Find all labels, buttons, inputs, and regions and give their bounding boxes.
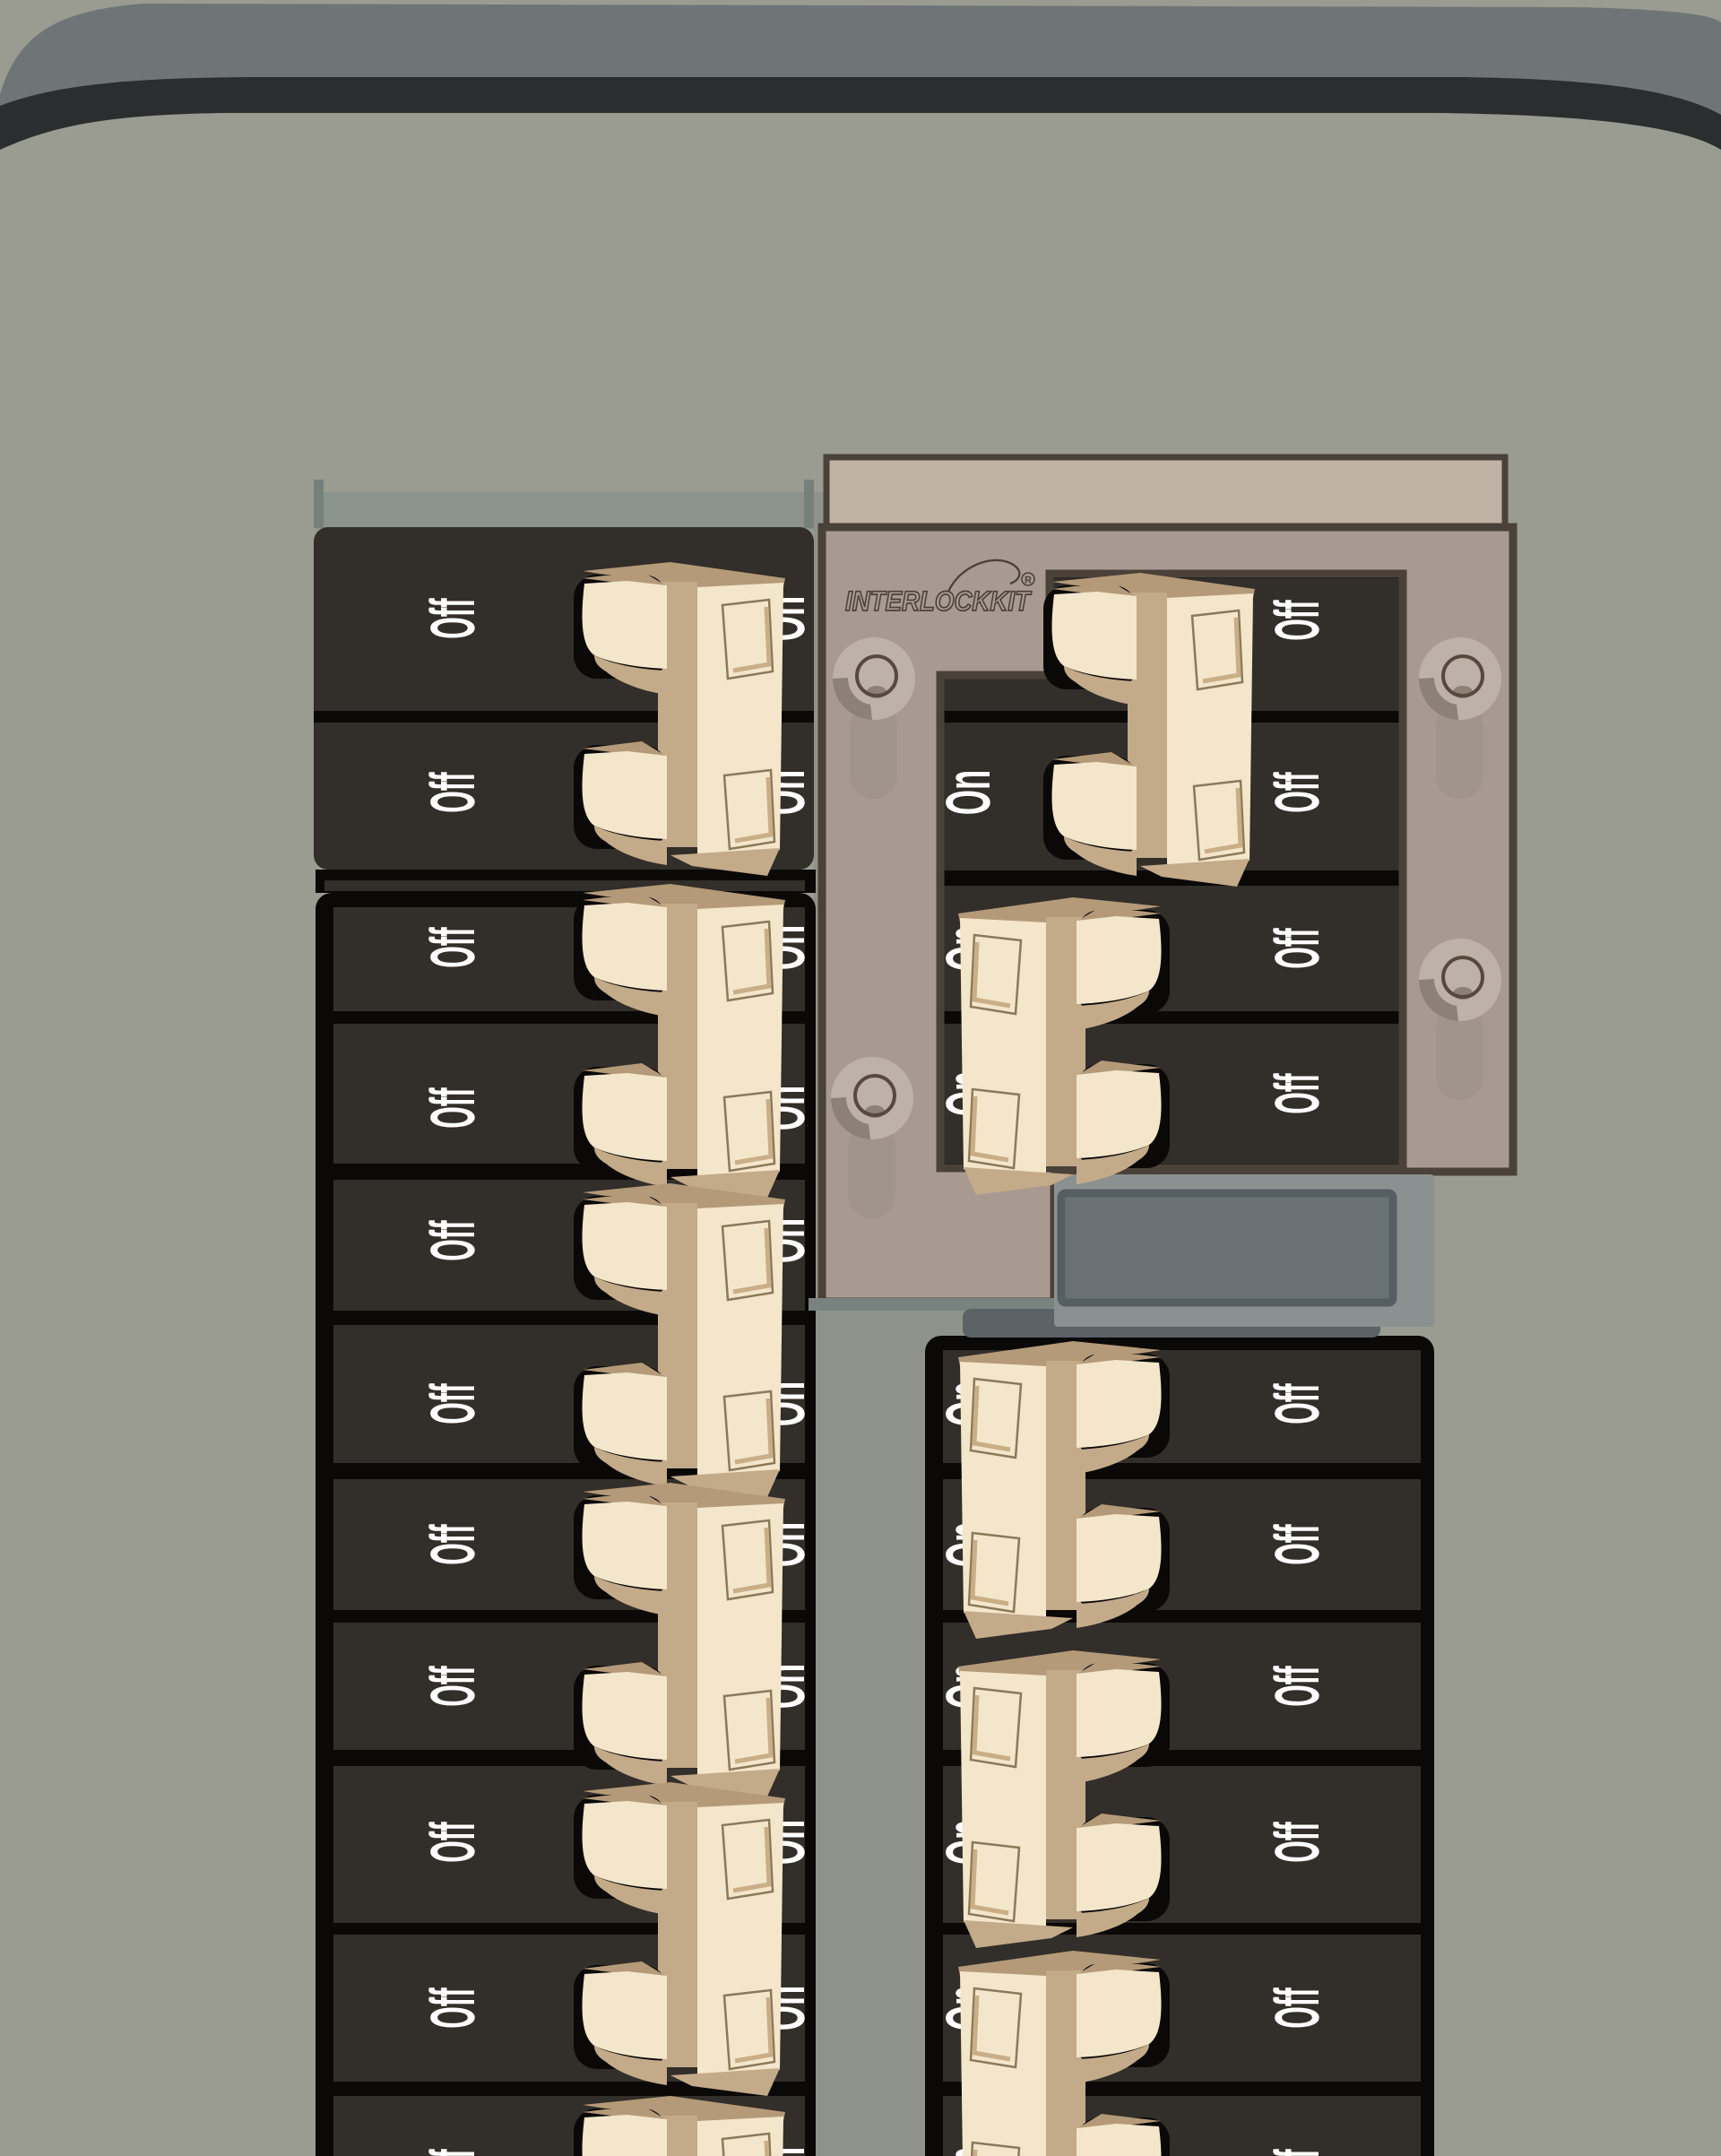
svg-text:Off: Off	[418, 1822, 488, 1863]
svg-text:Off: Off	[1262, 1822, 1332, 1863]
svg-text:Off: Off	[418, 1524, 488, 1565]
svg-text:Off: Off	[1262, 1073, 1332, 1114]
svg-text:Off: Off	[1262, 1987, 1332, 2029]
svg-text:Off: Off	[418, 1987, 488, 2029]
svg-text:Off: Off	[1262, 2149, 1332, 2156]
svg-text:Off: Off	[418, 927, 488, 968]
svg-text:INTERLOCKKIT: INTERLOCKKIT	[845, 585, 1033, 617]
svg-text:Off: Off	[418, 1666, 488, 1707]
svg-text:Off: Off	[418, 1220, 488, 1261]
svg-text:Off: Off	[1262, 928, 1332, 969]
svg-text:Off: Off	[1262, 1383, 1332, 1424]
svg-text:Off: Off	[418, 772, 488, 813]
svg-text:Off: Off	[418, 1383, 488, 1424]
svg-text:Off: Off	[1262, 772, 1332, 813]
svg-text:Off: Off	[418, 1087, 488, 1129]
svg-text:Off: Off	[418, 598, 488, 639]
svg-text:Off: Off	[1262, 1524, 1332, 1565]
svg-text:R: R	[1025, 576, 1032, 586]
svg-text:Off: Off	[1262, 1666, 1332, 1707]
svg-text:Off: Off	[1262, 600, 1332, 641]
svg-text:Off: Off	[418, 2149, 488, 2156]
